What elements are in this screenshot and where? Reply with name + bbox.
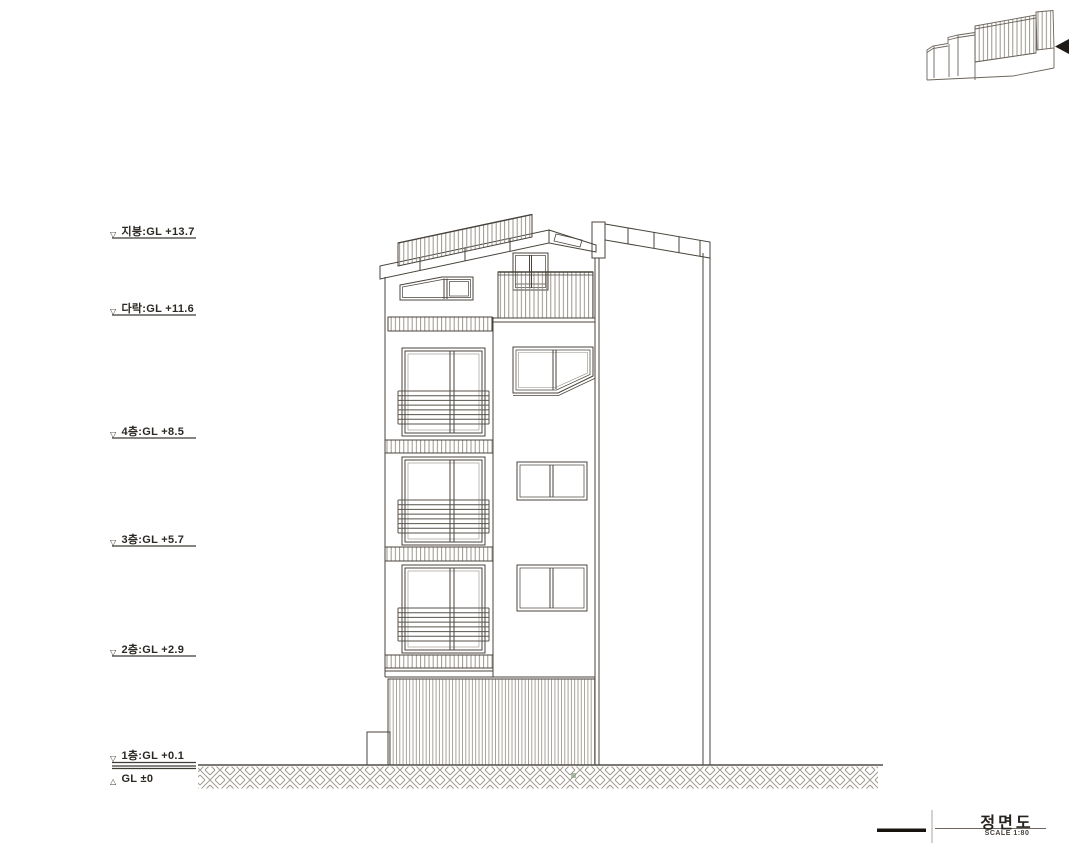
level-triangle-icon: ▽ [110,430,116,439]
level-label: GL ±0 [121,774,153,785]
level-triangle-icon: ▽ [110,307,116,316]
level-triangle-icon: ▽ [110,754,116,763]
level-triangle-icon: ▽ [110,230,116,239]
window-4f-left [398,348,489,436]
level-label: 1층:GL +0.1 [121,751,184,762]
middle-windows [513,347,595,611]
level-marker-floor-4: ▽ 4층:GL +8.5 [110,423,260,438]
ground-floor [367,671,595,778]
level-triangle-icon: ▽ [110,648,116,657]
balcony-windows [398,348,489,653]
level-lines [112,238,196,769]
spandrel-bands [385,317,493,668]
window-2f-middle [517,565,587,611]
level-label: 2층:GL +2.9 [121,645,184,656]
entrance-step [367,732,390,765]
level-marker-attic: ▽ 다락:GL +11.6 [110,300,260,315]
window-3f-left [398,457,489,545]
attic-balcony-railing [498,272,593,318]
level-marker-floor-3: ▽ 3층:GL +5.7 [110,531,260,546]
window-4f-middle [513,347,595,396]
key-plan [927,11,1069,81]
level-label: 지붕:GL +13.7 [121,227,194,238]
ground-hatch [198,767,878,789]
elevation-sheet: ▽ 지붕:GL +13.7 ▽ 다락:GL +11.6 ▽ 4층:GL +8.5… [0,0,1080,857]
window-3f-middle [517,462,587,500]
view-direction-arrow [1055,39,1069,54]
attic-level [400,253,595,322]
level-marker-gl: △ GL ±0 [110,770,260,785]
level-triangle-icon: △ [110,777,116,786]
level-marker-roof: ▽ 지붕:GL +13.7 [110,223,260,238]
level-marker-floor-2: ▽ 2층:GL +2.9 [110,641,260,656]
level-label: 4층:GL +8.5 [121,427,184,438]
level-marker-floor-1: ▽ 1층:GL +0.1 [110,747,260,762]
ground [198,765,883,789]
level-label: 3층:GL +5.7 [121,535,184,546]
level-label: 다락:GL +11.6 [121,304,194,315]
building-elevation [367,215,710,779]
window-2f-left [398,565,489,653]
drawing-scale: SCALE 1:80 [952,830,1062,837]
stair-tower [592,222,710,765]
level-triangle-icon: ▽ [110,538,116,547]
attic-window [400,277,473,300]
ground-floor-screen [388,679,595,765]
